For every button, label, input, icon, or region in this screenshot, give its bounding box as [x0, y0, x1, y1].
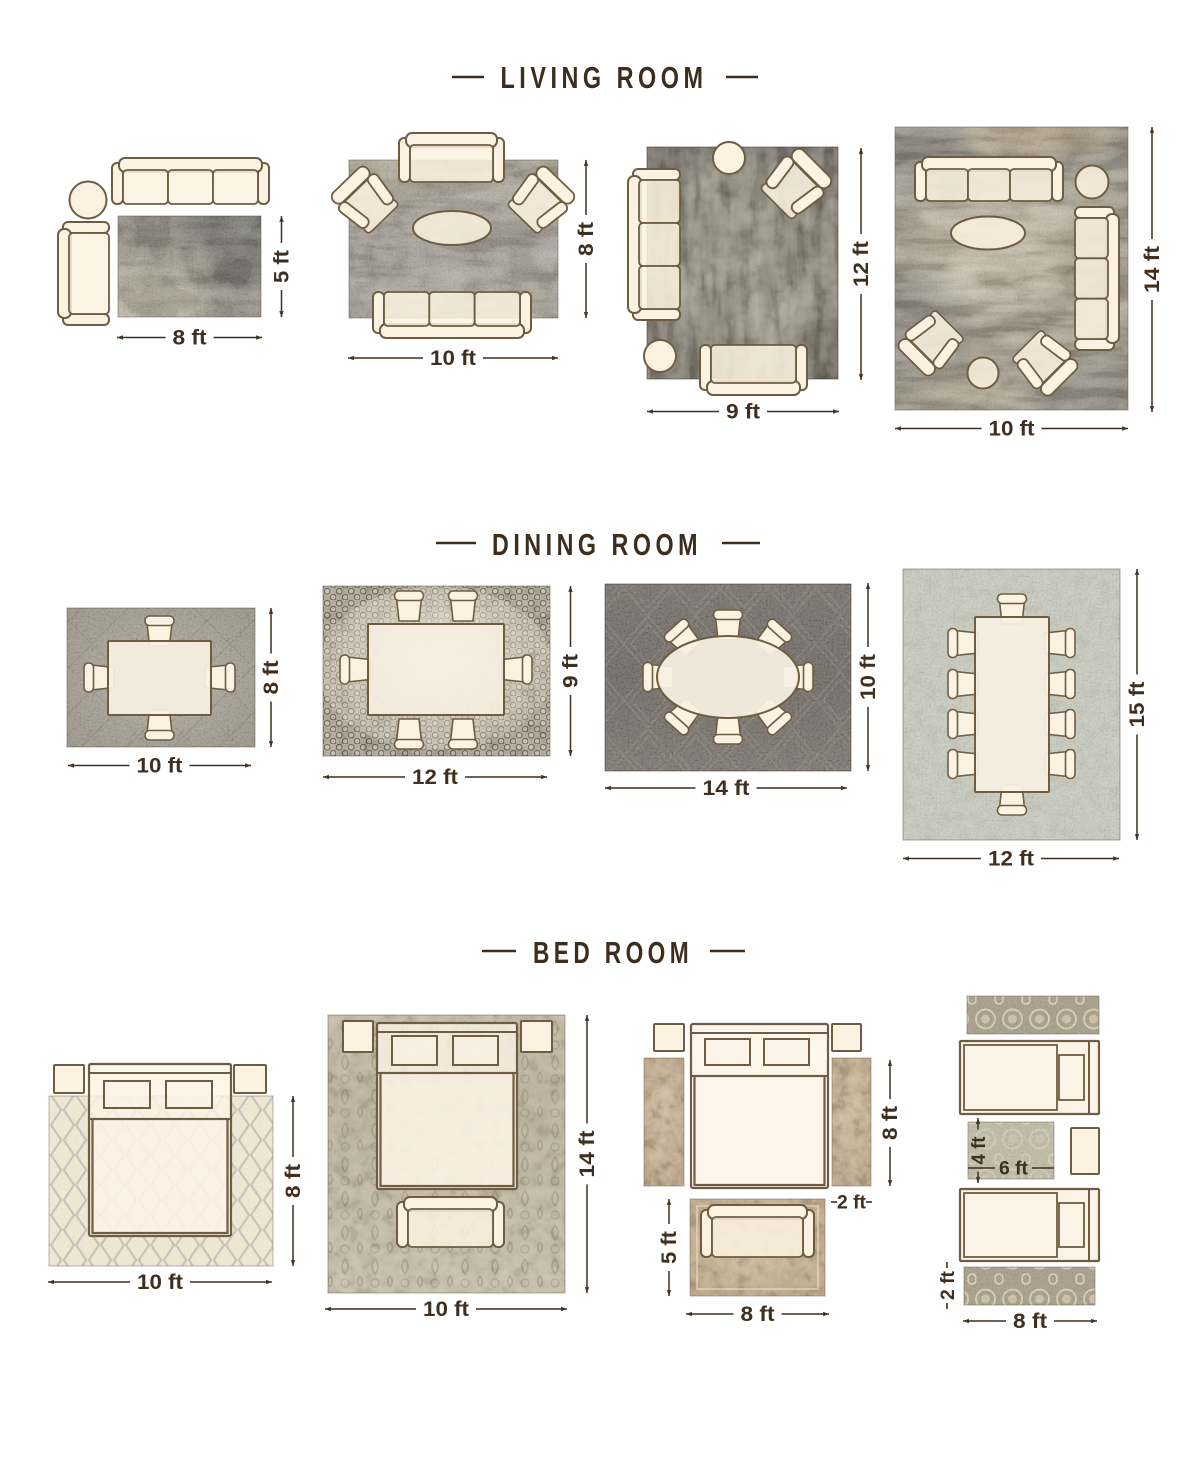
svg-text:2 ft: 2 ft	[938, 1270, 959, 1300]
svg-text:12 ft: 12 ft	[850, 241, 873, 287]
svg-text:14 ft: 14 ft	[703, 777, 750, 800]
svg-text:10 ft: 10 ft	[423, 1298, 469, 1321]
svg-text:10 ft: 10 ft	[857, 654, 880, 700]
svg-text:14 ft: 14 ft	[576, 1131, 599, 1178]
svg-text:9 ft: 9 ft	[726, 401, 760, 424]
svg-text:8 ft: 8 ft	[173, 327, 207, 350]
svg-text:4 ft: 4 ft	[969, 1136, 990, 1165]
svg-text:8 ft: 8 ft	[741, 1303, 775, 1326]
svg-text:8 ft: 8 ft	[575, 222, 598, 256]
svg-text:6 ft: 6 ft	[999, 1159, 1029, 1180]
svg-text:9 ft: 9 ft	[560, 654, 583, 688]
svg-text:5 ft: 5 ft	[658, 1231, 681, 1264]
svg-text:10 ft: 10 ft	[137, 1271, 183, 1294]
svg-text:15 ft: 15 ft	[1126, 682, 1149, 728]
svg-text:10 ft: 10 ft	[430, 347, 476, 370]
svg-text:5 ft: 5 ft	[271, 250, 294, 283]
svg-text:12 ft: 12 ft	[988, 848, 1034, 871]
svg-text:LIVING ROOM: LIVING ROOM	[501, 60, 708, 95]
svg-text:8 ft: 8 ft	[879, 1106, 902, 1140]
svg-text:8 ft: 8 ft	[1013, 1310, 1047, 1333]
svg-text:14 ft: 14 ft	[1141, 246, 1164, 293]
svg-text:BED ROOM: BED ROOM	[533, 935, 693, 970]
svg-text:12 ft: 12 ft	[412, 766, 458, 789]
svg-text:10 ft: 10 ft	[137, 755, 183, 778]
svg-text:10 ft: 10 ft	[989, 418, 1035, 441]
svg-text:8 ft: 8 ft	[260, 660, 283, 694]
svg-text:2 ft: 2 ft	[837, 1193, 867, 1214]
svg-text:DINING ROOM: DINING ROOM	[492, 527, 702, 562]
svg-text:8 ft: 8 ft	[282, 1164, 305, 1198]
